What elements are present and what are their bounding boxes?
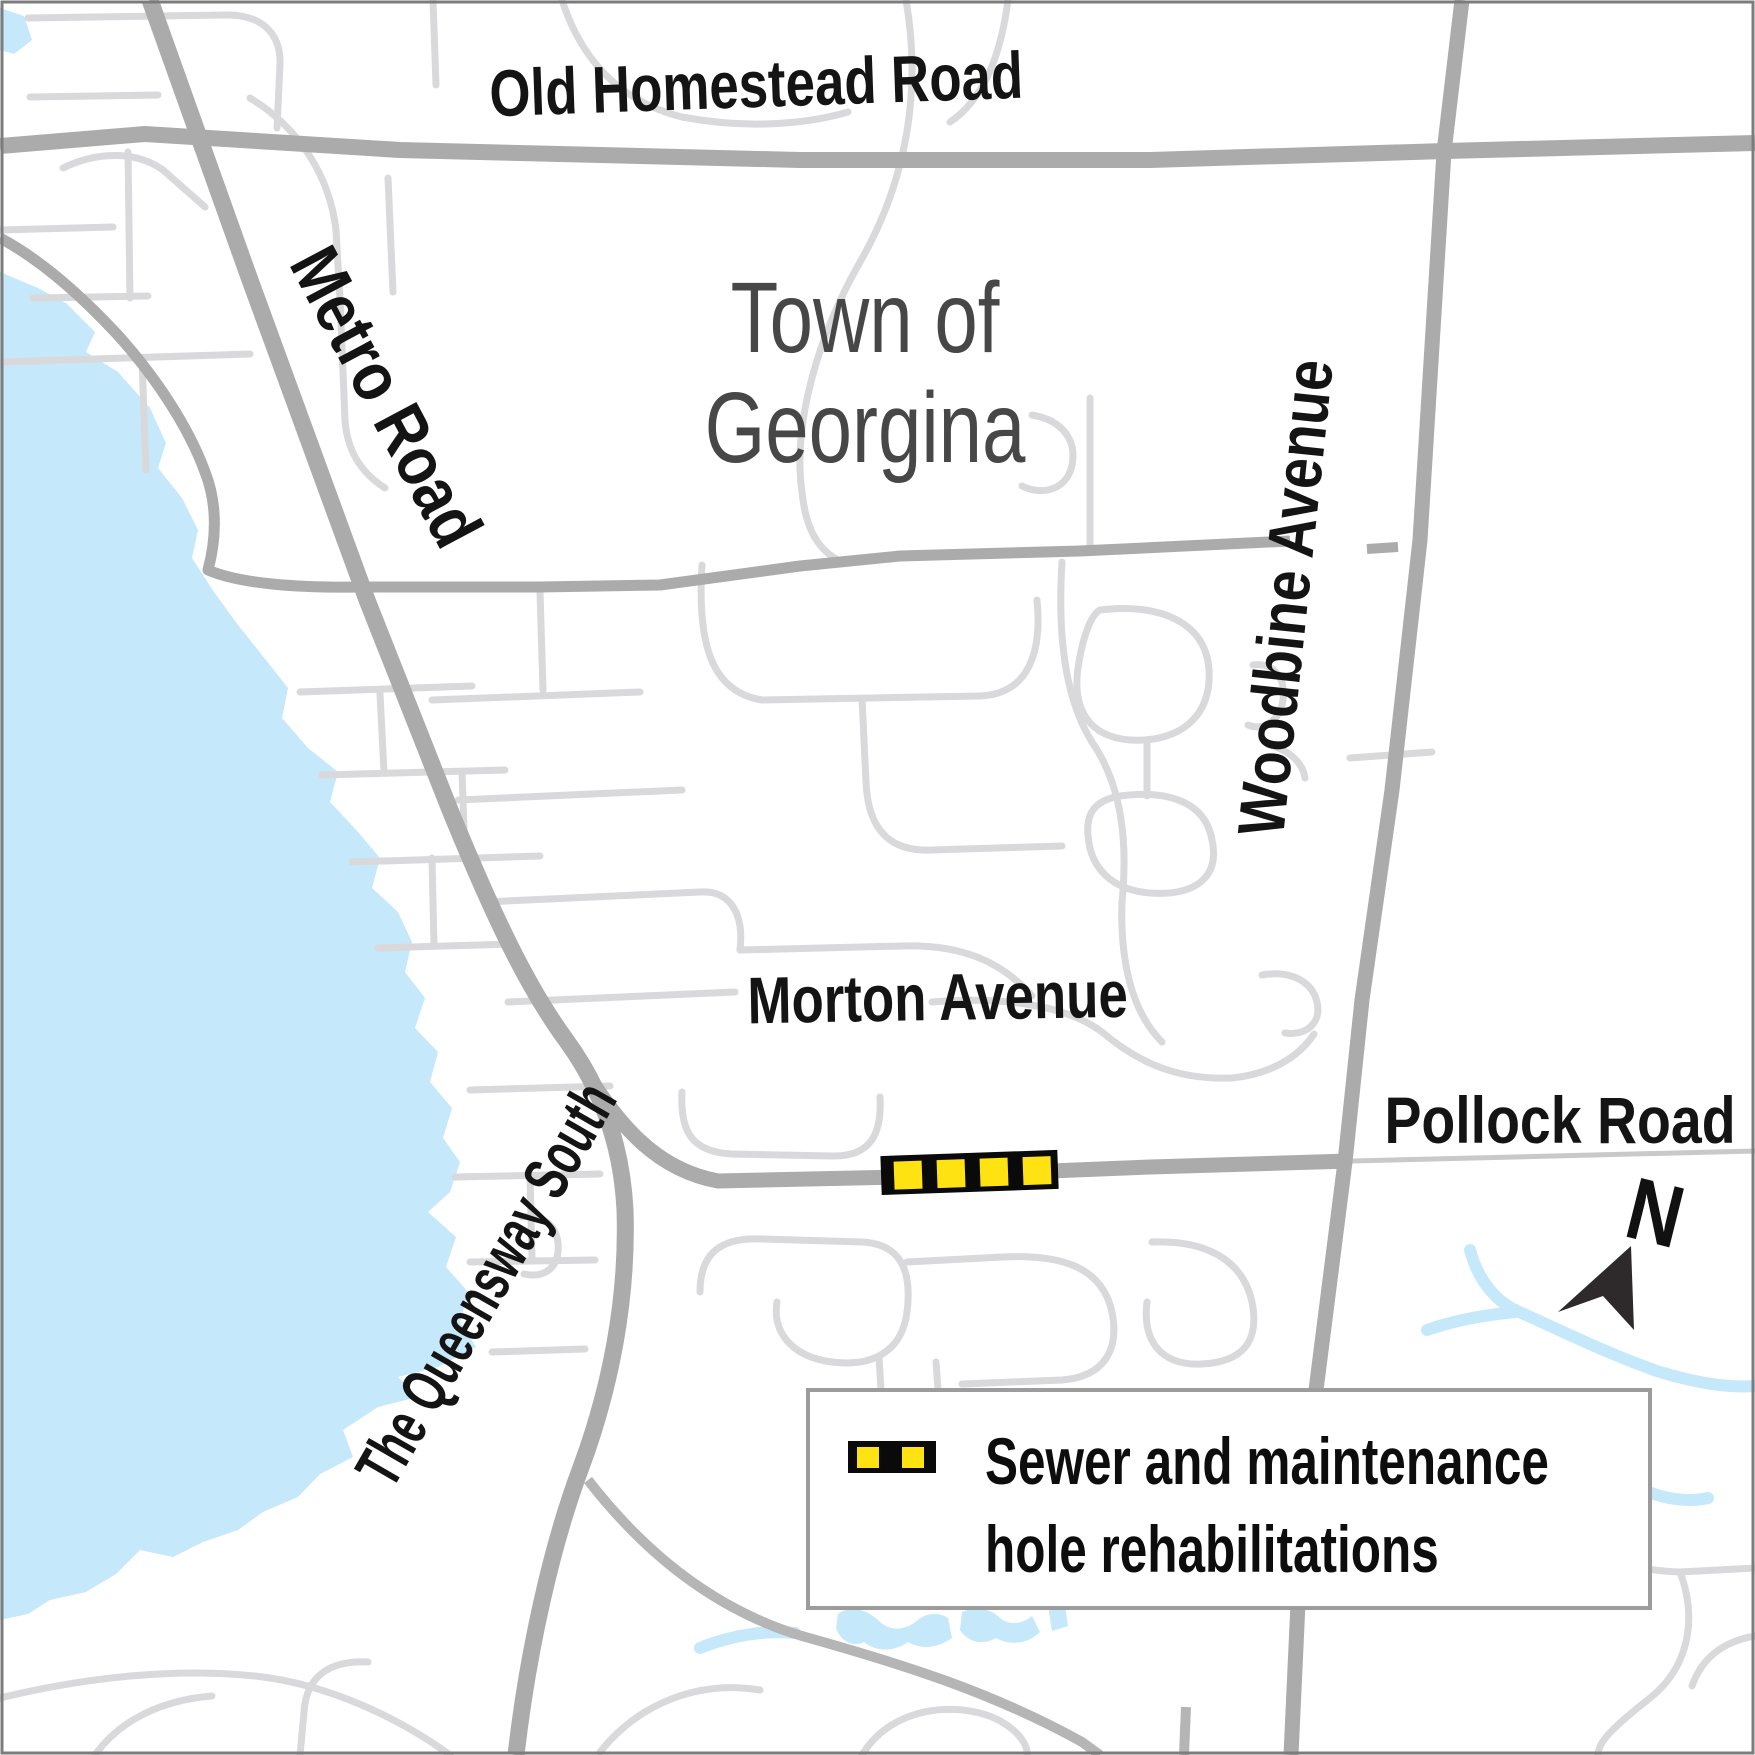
marker-yellow-dash bbox=[937, 1159, 966, 1188]
legend-item-label-line2: hole rehabilitations bbox=[985, 1513, 1439, 1587]
project-map: Old Homestead Road Metro Road Woodbine A… bbox=[0, 0, 1755, 1755]
label-region-line1: Town of bbox=[731, 263, 1001, 375]
label-morton-avenue: Morton Avenue bbox=[747, 957, 1128, 1038]
legend-swatch-yellow-dash bbox=[857, 1447, 879, 1468]
legend: Sewer and maintenance hole rehabilitatio… bbox=[808, 1390, 1650, 1608]
legend-label-text: Sewer and maintenance bbox=[985, 1425, 1549, 1499]
region-label-text: Georgina bbox=[705, 373, 1026, 485]
map-canvas: Old Homestead Road Metro Road Woodbine A… bbox=[0, 0, 1755, 1755]
road-label-text: Morton Avenue bbox=[747, 957, 1128, 1038]
legend-swatch-sewer-rehab bbox=[848, 1441, 936, 1473]
legend-item-label-line1: Sewer and maintenance bbox=[985, 1425, 1549, 1499]
middle-road-stub bbox=[1367, 547, 1398, 549]
label-region-line2: Georgina bbox=[705, 373, 1026, 485]
marker-yellow-dash bbox=[980, 1158, 1009, 1187]
legend-label-text: hole rehabilitations bbox=[985, 1513, 1439, 1587]
legend-swatch-yellow-dash bbox=[902, 1447, 924, 1468]
region-label-text: Town of bbox=[731, 263, 1001, 375]
marker-yellow-dash bbox=[894, 1161, 923, 1190]
marker-yellow-dash bbox=[1023, 1156, 1052, 1185]
sewer-rehab-marker bbox=[880, 1150, 1058, 1195]
label-pollock-road: Pollock Road bbox=[1384, 1083, 1735, 1157]
road-label-text: Pollock Road bbox=[1384, 1083, 1735, 1157]
lower-shore-branch bbox=[1184, 1707, 1186, 1755]
